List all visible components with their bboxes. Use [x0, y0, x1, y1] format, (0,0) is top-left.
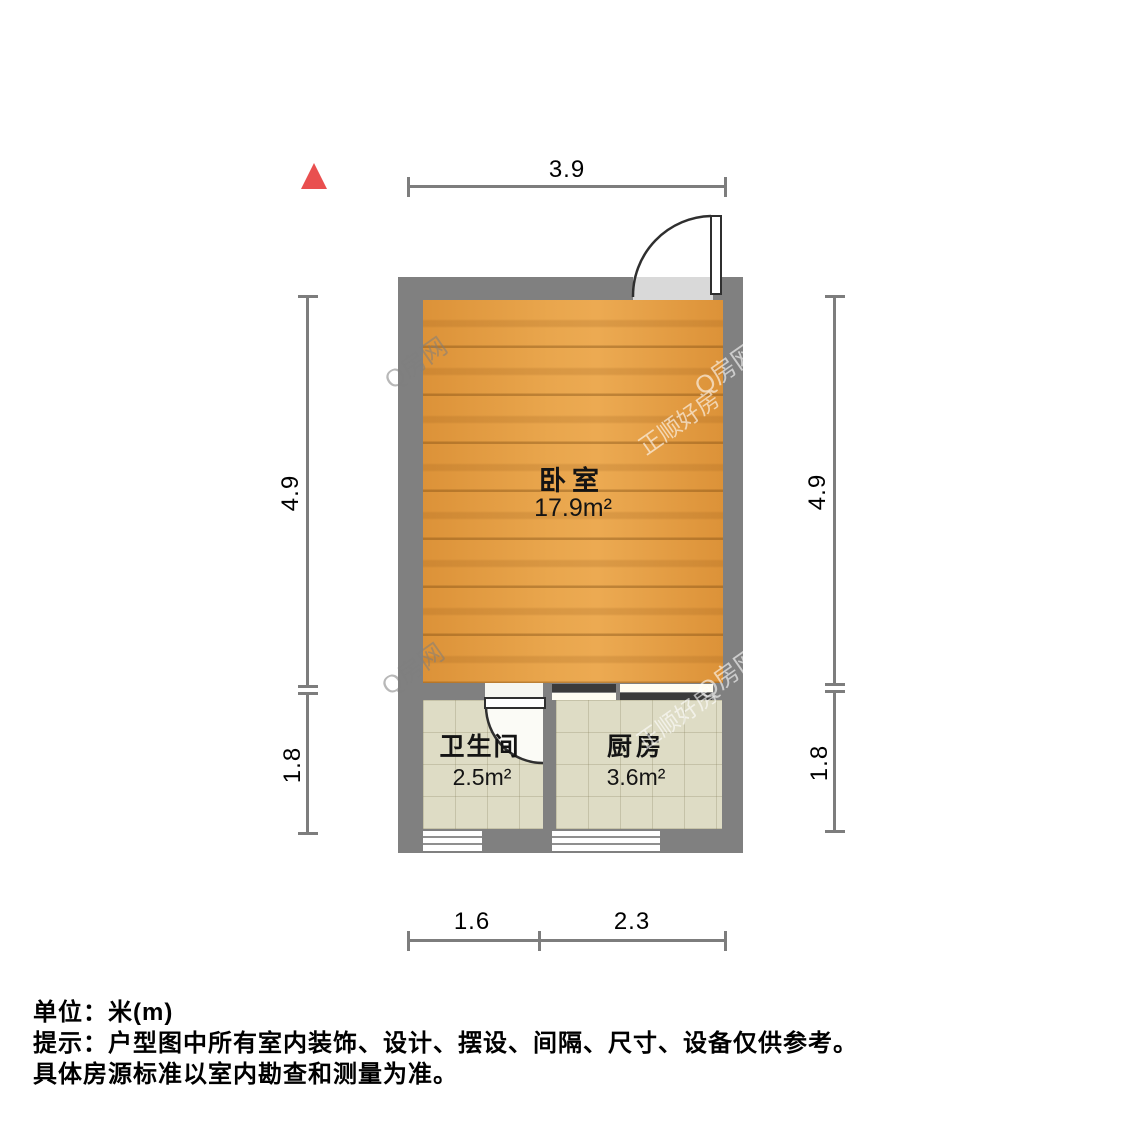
bathroom-window [423, 831, 482, 851]
bathroom-door-leaf [484, 697, 546, 709]
dimension-tick [724, 931, 727, 951]
dimension-tick [407, 931, 410, 951]
footer-disclaimer-1: 提示：户型图中所有室内装饰、设计、摆设、间隔、尺寸、设备仅供参考。 [33, 1023, 858, 1058]
dimension-label-right-lower: 1.8 [806, 731, 834, 795]
dimension-tick [724, 177, 727, 197]
kitchen-window [552, 831, 660, 851]
dimension-label-top: 3.9 [535, 156, 599, 184]
bedroom-area: 17.9m² [493, 494, 653, 523]
dimension-tick [298, 685, 318, 688]
dimension-label-bottom-right: 2.3 [600, 908, 664, 936]
footer-units: 单位：米(m) [33, 992, 173, 1027]
dimension-tick [298, 692, 318, 695]
bathroom-label: 卫生间 [400, 727, 560, 763]
dimension-label-right-upper: 4.9 [804, 460, 832, 524]
dimension-tick [825, 690, 845, 693]
sliding-door-panel [552, 684, 616, 692]
sliding-door-panel [620, 693, 712, 700]
dimension-label-left-lower: 1.8 [279, 733, 307, 797]
sliding-door-panel [620, 684, 713, 692]
footer-disclaimer-2: 具体房源标准以室内勘查和测量为准。 [33, 1054, 458, 1089]
dimension-line [833, 295, 836, 686]
bathroom-area: 2.5m² [402, 764, 562, 791]
floor-plan: 3.9 1.6 2.3 4.9 1.8 4.9 1.8 [0, 0, 1144, 1130]
sliding-door-panel [552, 693, 616, 700]
dimension-tick [825, 295, 845, 298]
dimension-tick [825, 830, 845, 833]
dimension-line [407, 185, 727, 188]
kitchen-area: 3.6m² [556, 764, 716, 791]
north-arrow-icon [301, 163, 327, 189]
bedroom-label: 卧室 [492, 459, 652, 498]
dimension-line [306, 295, 309, 688]
dimension-line [407, 939, 727, 942]
dimension-tick [407, 177, 410, 197]
dimension-tick [538, 931, 541, 951]
kitchen-label: 厨房 [556, 727, 716, 763]
dimension-tick [298, 295, 318, 298]
dimension-tick [298, 832, 318, 835]
entry-door-leaf [710, 215, 722, 295]
dimension-tick [825, 683, 845, 686]
dimension-label-bottom-left: 1.6 [440, 908, 504, 936]
dimension-label-left-upper: 4.9 [277, 461, 305, 525]
